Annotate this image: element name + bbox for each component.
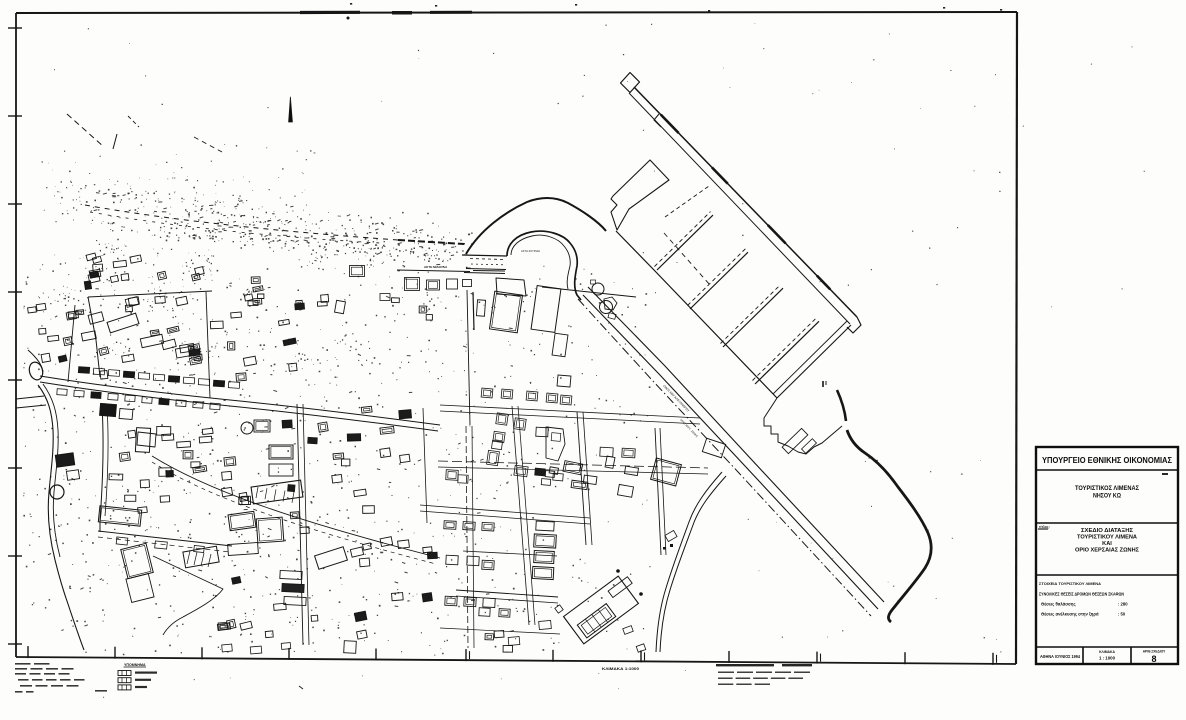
svg-text:ΑΡΙΘ.ΣΧΕΔΙΟΥ: ΑΡΙΘ.ΣΧΕΔΙΟΥ <box>1143 650 1166 654</box>
svg-text:ΚΛΙΜΑΚΑ: ΚΛΙΜΑΚΑ <box>1099 650 1115 654</box>
svg-text:ΚΑΙ: ΚΑΙ <box>1102 541 1112 547</box>
svg-text:ΑΚΤΗ ΖΟΥΡΙΔΗ: ΑΚΤΗ ΖΟΥΡΙΔΗ <box>521 249 540 253</box>
svg-text:ΤΟΥΡΙΣΤΙΚΟΥ ΛΙΜΕΝΑ: ΤΟΥΡΙΣΤΙΚΟΥ ΛΙΜΕΝΑ <box>1077 535 1137 541</box>
svg-text:ΟΡΙΟ ΧΕΡΣΑΙΑΣ ΖΩΝΗΣ: ΟΡΙΟ ΧΕΡΣΑΙΑΣ ΖΩΝΗΣ <box>1075 548 1140 554</box>
svg-text:ΥΠΟΥΡΓΕΙΟ ΕΘΝΙΚΗΣ ΟΙΚΟΝΟΜΙΑΣ: ΥΠΟΥΡΓΕΙΟ ΕΘΝΙΚΗΣ ΟΙΚΟΝΟΜΙΑΣ <box>1042 455 1172 465</box>
svg-text:ΣΥΝΟΛΙΚΕΣ ΘΕΣΕΙΣ ΔΡΟΜΩΝ ΘΕΣΕΩΝ: ΣΥΝΟΛΙΚΕΣ ΘΕΣΕΙΣ ΔΡΟΜΩΝ ΘΕΣΕΩΝ ΣΚΑΦΩΝ <box>1039 592 1124 597</box>
svg-text:ΑΘΗΝΑ ΙΟΥΝΙΟΣ 1994: ΑΘΗΝΑ ΙΟΥΝΙΟΣ 1994 <box>1040 654 1081 659</box>
svg-text:ΣΧΕΔΙΟ ΔΙΑΤΑΞΗΣ: ΣΧΕΔΙΟ ΔΙΑΤΑΞΗΣ <box>1081 528 1134 534</box>
svg-text:: 280: : 280 <box>1118 602 1128 607</box>
svg-text:ΚΛΙΜΑΚΑ 1:1000: ΚΛΙΜΑΚΑ 1:1000 <box>602 666 640 671</box>
svg-text:ΤΟΥΡΙΣΤΙΚΟΣ ΛΙΜΕΝΑΣ: ΤΟΥΡΙΣΤΙΚΟΣ ΛΙΜΕΝΑΣ <box>1075 486 1139 492</box>
svg-text:Θέσεις θαλάσσης: Θέσεις θαλάσσης <box>1041 602 1076 607</box>
svg-text:ΝΗΣΟΥ ΚΩ: ΝΗΣΟΥ ΚΩ <box>1093 494 1121 500</box>
svg-text:8: 8 <box>1151 654 1156 664</box>
svg-text:ΥΠΟΜΝΗΜΑ: ΥΠΟΜΝΗΜΑ <box>124 663 146 667</box>
svg-text:: 50: : 50 <box>1118 612 1126 617</box>
svg-text:1 : 1000: 1 : 1000 <box>1099 656 1116 661</box>
svg-text:Θέσεις ανέλκυσης στην ξηρά: Θέσεις ανέλκυσης στην ξηρά <box>1041 612 1099 617</box>
svg-text:ΣΤΟΙΧΕΙΑ ΤΟΥΡΙΣΤΙΚΟΥ ΛΙΜΕΝΑ: ΣΤΟΙΧΕΙΑ ΤΟΥΡΙΣΤΙΚΟΥ ΛΙΜΕΝΑ <box>1039 581 1101 586</box>
